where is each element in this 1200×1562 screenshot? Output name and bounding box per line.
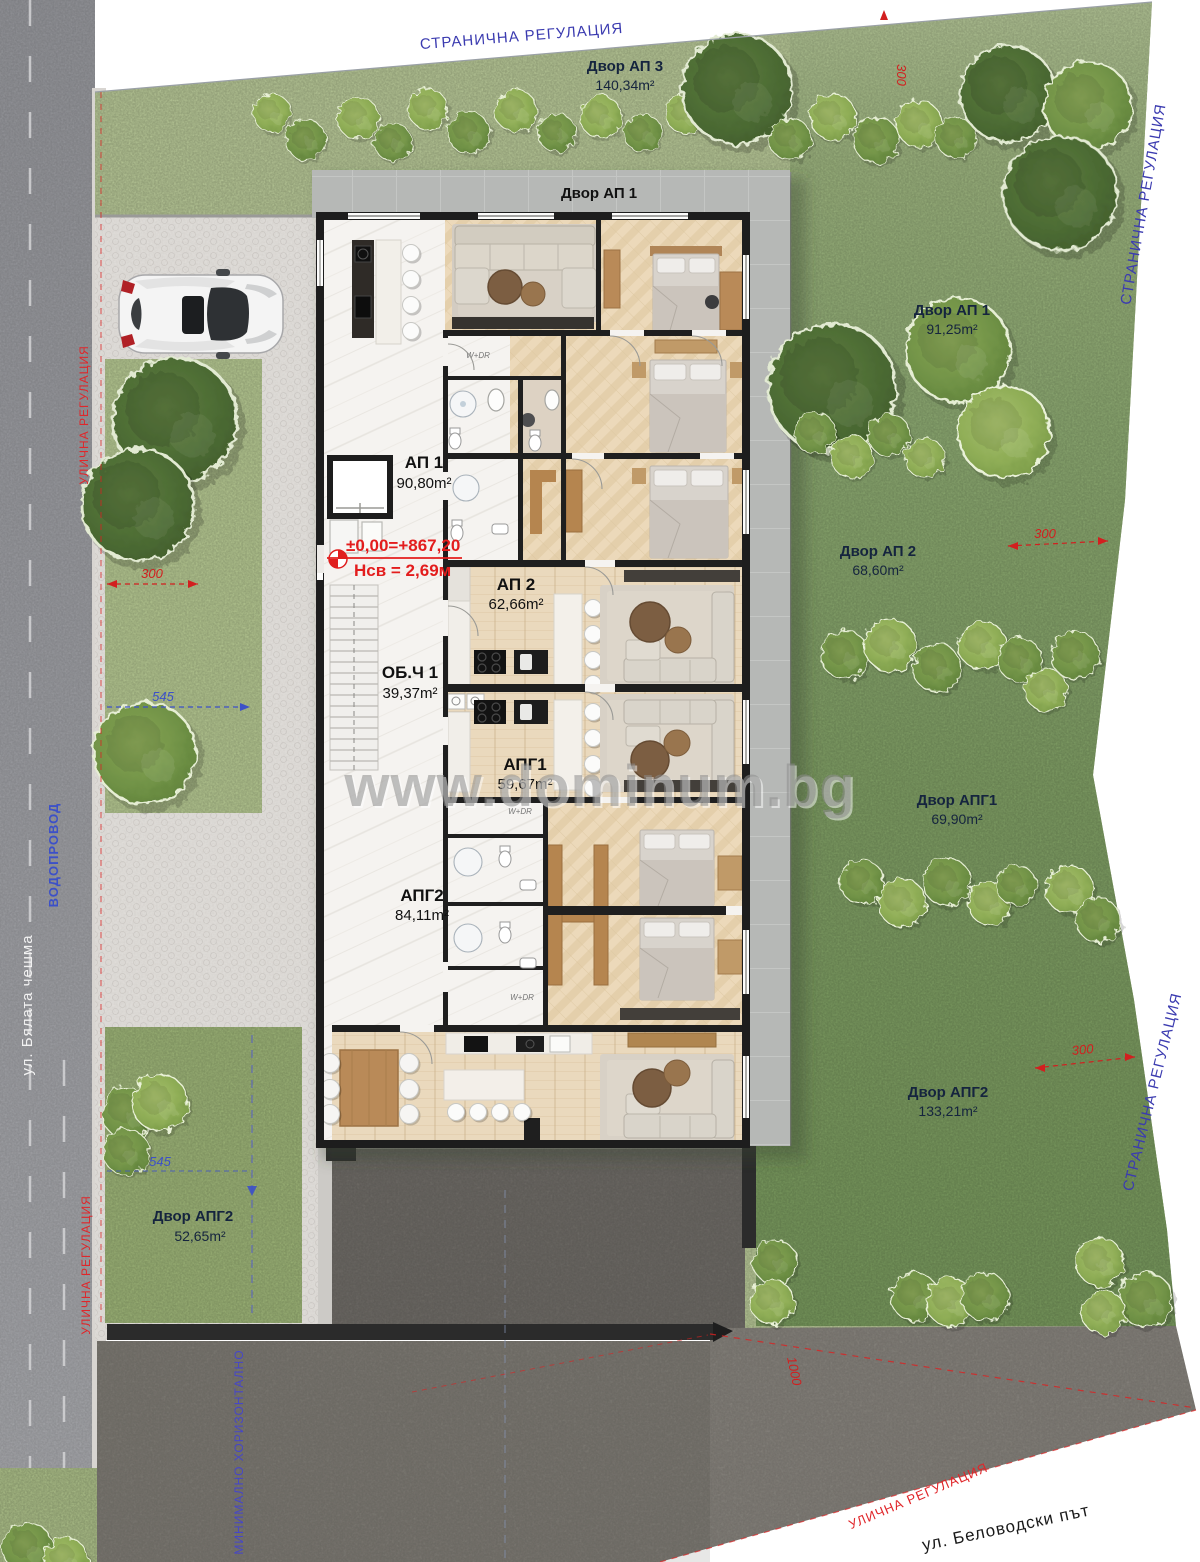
- svg-text:±0,00=+867,20: ±0,00=+867,20: [346, 536, 460, 555]
- svg-text:ВОДОПРОВОД: ВОДОПРОВОД: [46, 803, 61, 908]
- svg-text:84,11m²: 84,11m²: [395, 907, 449, 924]
- svg-text:УЛИЧНА РЕГУЛАЦИЯ: УЛИЧНА РЕГУЛАЦИЯ: [77, 345, 91, 485]
- svg-text:62,66m²: 62,66m²: [488, 596, 543, 613]
- svg-text:Двор АП 1: Двор АП 1: [561, 185, 637, 202]
- svg-text:69,90m²: 69,90m²: [931, 811, 983, 827]
- svg-text:ОБ.Ч 1: ОБ.Ч 1: [382, 663, 438, 682]
- svg-text:90,80m²: 90,80m²: [396, 475, 451, 492]
- svg-text:W+DR: W+DR: [510, 993, 534, 1002]
- svg-text:АП 2: АП 2: [497, 575, 535, 594]
- svg-text:www.dominum.bg: www.dominum.bg: [343, 754, 855, 819]
- svg-text:ул. Бялата чешма: ул. Бялата чешма: [19, 934, 36, 1075]
- svg-text:545: 545: [152, 689, 174, 704]
- svg-text:68,60m²: 68,60m²: [852, 562, 904, 578]
- svg-text:133,21m²: 133,21m²: [918, 1103, 977, 1119]
- svg-text:300: 300: [1071, 1041, 1095, 1058]
- svg-text:МИНИМАЛНО ХОРИЗОНТАЛНО: МИНИМАЛНО ХОРИЗОНТАЛНО: [232, 1349, 246, 1554]
- svg-text:545: 545: [149, 1154, 171, 1169]
- svg-text:Двор АП 1: Двор АП 1: [914, 302, 990, 319]
- svg-text:АП 1: АП 1: [405, 453, 443, 472]
- svg-text:39,37m²: 39,37m²: [382, 685, 437, 702]
- svg-text:91,25m²: 91,25m²: [926, 321, 978, 337]
- svg-text:52,65m²: 52,65m²: [174, 1228, 226, 1244]
- svg-text:Двор АПГ1: Двор АПГ1: [917, 792, 997, 809]
- svg-text:УЛИЧНА РЕГУЛАЦИЯ: УЛИЧНА РЕГУЛАЦИЯ: [79, 1195, 93, 1335]
- svg-text:Нсв = 2,69м: Нсв = 2,69м: [354, 561, 451, 580]
- svg-text:Двор АПГ2: Двор АПГ2: [908, 1084, 988, 1101]
- svg-text:Двор АП 2: Двор АП 2: [840, 543, 916, 560]
- svg-text:300: 300: [894, 64, 909, 86]
- svg-text:АПГ2: АПГ2: [400, 886, 443, 905]
- svg-text:Двор АП 3: Двор АП 3: [587, 58, 663, 75]
- svg-text:300: 300: [141, 566, 163, 581]
- svg-text:300: 300: [1034, 526, 1056, 541]
- svg-text:Двор АПГ2: Двор АПГ2: [153, 1208, 233, 1225]
- svg-text:140,34m²: 140,34m²: [595, 77, 654, 93]
